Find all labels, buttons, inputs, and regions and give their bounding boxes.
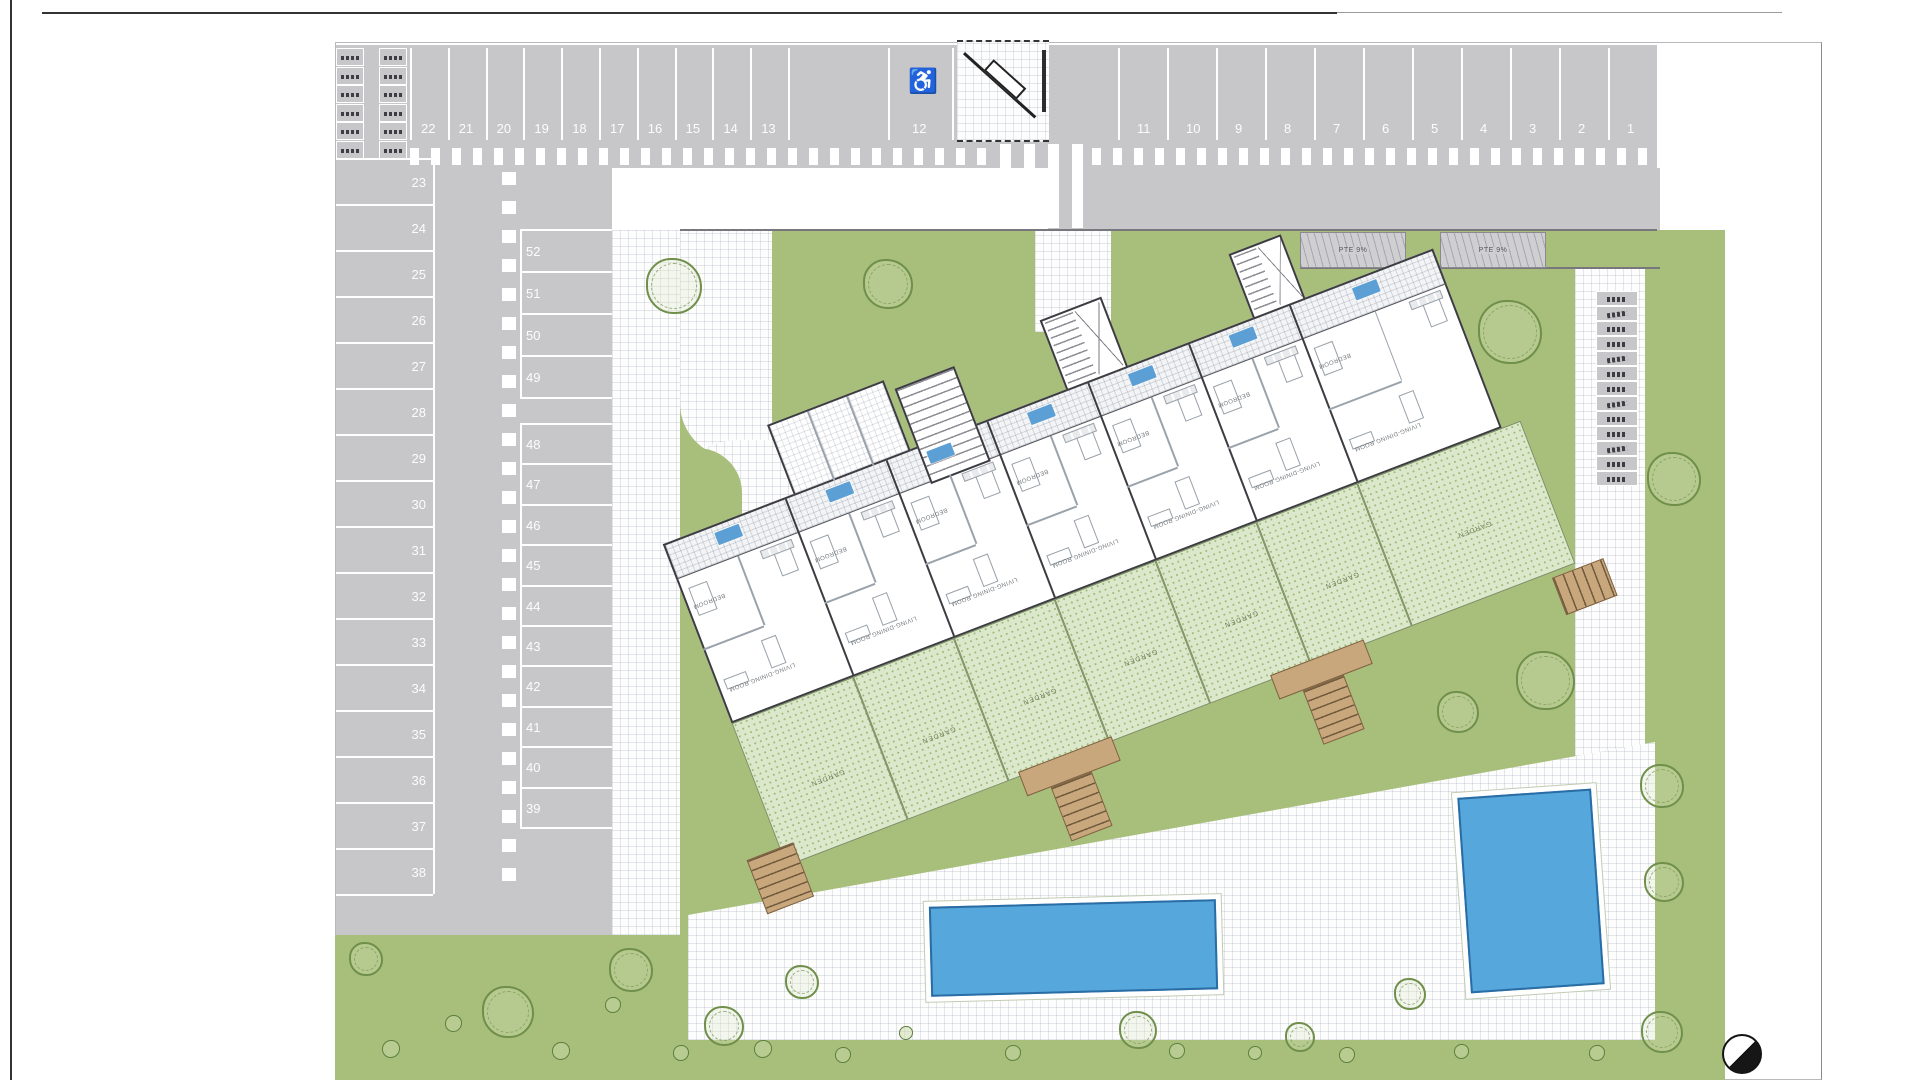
parking-space-number-12: 12 xyxy=(912,122,926,135)
tree-icon xyxy=(349,942,383,976)
parking-space-number-15: 15 xyxy=(686,122,700,135)
bike-stall xyxy=(336,67,364,85)
stall-line xyxy=(520,625,612,627)
stall-line xyxy=(520,504,612,506)
garden-terrace-label: GARDEN xyxy=(1223,609,1259,628)
entrance-crosswalk xyxy=(1000,144,1092,228)
garden-terrace-label: GARDEN xyxy=(1122,648,1158,667)
bike-icon xyxy=(341,93,359,97)
bike-icon xyxy=(341,56,359,60)
stall-line xyxy=(336,894,433,896)
swimming-pool-east xyxy=(1457,789,1604,994)
moto-icon xyxy=(1607,387,1627,392)
stall-line xyxy=(712,48,714,140)
tree-icon xyxy=(609,948,653,992)
parking-space-number-41: 41 xyxy=(526,721,540,734)
parking-space-number-52: 52 xyxy=(526,245,540,258)
parking-space-number-32: 32 xyxy=(388,590,426,603)
parking-space-number-22: 22 xyxy=(421,122,435,135)
bike-stall xyxy=(379,141,407,159)
parking-space-number-34: 34 xyxy=(388,682,426,695)
tree-icon xyxy=(1516,651,1575,710)
parking-space-number-43: 43 xyxy=(526,640,540,653)
bike-stall xyxy=(379,122,407,140)
moto-icon xyxy=(1607,327,1627,332)
stall-line xyxy=(952,48,954,140)
sheet-frame-top-line xyxy=(42,12,1337,14)
stall-line xyxy=(336,664,433,666)
garden-terrace-label: GARDEN xyxy=(1456,519,1492,538)
parking-space-number-44: 44 xyxy=(526,600,540,613)
parking-space-number-38: 38 xyxy=(388,866,426,879)
parking-space-number-13: 13 xyxy=(761,122,775,135)
bike-icon xyxy=(384,130,402,134)
stall-line xyxy=(599,48,601,140)
parking-space-number-25: 25 xyxy=(388,268,426,281)
tree-icon xyxy=(1647,452,1701,506)
moto-icon xyxy=(1607,462,1627,467)
moto-stall xyxy=(1596,426,1638,441)
stall-line xyxy=(1314,48,1316,140)
bike-icon xyxy=(384,149,402,153)
handicap-icon: ♿ xyxy=(908,70,938,94)
bike-icon xyxy=(341,112,359,116)
stall-line xyxy=(336,802,433,804)
parking-space-number-8: 8 xyxy=(1284,122,1291,135)
tree-icon xyxy=(1119,1011,1157,1049)
bush-icon xyxy=(1454,1044,1469,1059)
moto-icon xyxy=(1607,311,1628,319)
tree-icon xyxy=(646,258,702,314)
moto-icon xyxy=(1607,401,1628,409)
stall-line xyxy=(1461,48,1463,140)
moto-stall xyxy=(1596,351,1638,366)
stall-line xyxy=(520,787,612,789)
bike-icon xyxy=(384,93,402,97)
parking-space-number-42: 42 xyxy=(526,680,540,693)
stall-line xyxy=(1559,48,1561,140)
stall-line xyxy=(336,434,433,436)
stall-line xyxy=(336,526,433,528)
center-walk-dashes xyxy=(502,172,516,895)
bike-stall xyxy=(379,85,407,103)
tree-icon xyxy=(1640,764,1684,808)
parking-space-number-29: 29 xyxy=(388,452,426,465)
parking-space-number-17: 17 xyxy=(610,122,624,135)
top-walk-dashes-left xyxy=(410,148,998,165)
stall-line xyxy=(1216,48,1218,140)
stall-line xyxy=(520,827,612,829)
stall-line xyxy=(520,665,612,667)
stall-line xyxy=(448,48,450,140)
utility-partition xyxy=(846,396,874,466)
moto-stall xyxy=(1596,336,1638,351)
moto-icon xyxy=(1607,446,1628,454)
top-walk-dashes-right xyxy=(1092,148,1657,165)
bike-icon xyxy=(341,149,359,153)
parking-space-number-6: 6 xyxy=(1382,122,1389,135)
stall-line xyxy=(336,618,433,620)
parking-space-number-26: 26 xyxy=(388,314,426,327)
moto-stall xyxy=(1596,471,1638,486)
tree-icon xyxy=(863,259,913,309)
site-plan-canvas: PTE 9% PTE 9% ♿ 12 22212019181716151413 … xyxy=(0,0,1920,1080)
stall-line xyxy=(1363,48,1365,140)
moto-stall xyxy=(1596,411,1638,426)
sheet-frame-left-line xyxy=(10,0,12,1080)
stall-line xyxy=(1412,48,1414,140)
stall-line xyxy=(520,423,522,827)
parking-space-number-30: 30 xyxy=(388,498,426,511)
north-site-wall xyxy=(680,229,1657,231)
sheet-frame-top-line-2 xyxy=(1337,12,1782,13)
bike-icon xyxy=(384,75,402,79)
parking-space-number-24: 24 xyxy=(388,222,426,235)
parking-space-number-37: 37 xyxy=(388,820,426,833)
parking-space-number-28: 28 xyxy=(388,406,426,419)
stall-line xyxy=(1608,48,1610,140)
parking-space-number-21: 21 xyxy=(459,122,473,135)
parking-space-number-46: 46 xyxy=(526,519,540,532)
parking-space-number-36: 36 xyxy=(388,774,426,787)
bike-icon xyxy=(384,56,402,60)
parking-space-number-4: 4 xyxy=(1480,122,1487,135)
garage-ramp-right: PTE 9% xyxy=(1440,232,1546,268)
stall-line xyxy=(788,48,790,140)
stall-line xyxy=(336,388,433,390)
stall-line xyxy=(1265,48,1267,140)
stall-line xyxy=(486,48,488,140)
bike-icon xyxy=(341,75,359,79)
stall-line xyxy=(520,544,612,546)
bike-stall xyxy=(379,48,407,66)
stall-line xyxy=(336,756,433,758)
bike-stall xyxy=(336,85,364,103)
stall-line xyxy=(520,313,612,315)
handicap-parking-space: ♿ 12 xyxy=(888,48,954,148)
swimming-pool-main xyxy=(929,899,1218,996)
moto-stall xyxy=(1596,291,1638,306)
stall-line xyxy=(675,48,677,140)
parking-space-number-19: 19 xyxy=(534,122,548,135)
moto-stall xyxy=(1596,396,1638,411)
stall-line xyxy=(336,250,433,252)
parking-space-number-45: 45 xyxy=(526,559,540,572)
parking-space-number-9: 9 xyxy=(1235,122,1242,135)
north-compass-icon xyxy=(1722,1034,1762,1074)
parking-space-number-48: 48 xyxy=(526,438,540,451)
stall-line xyxy=(1167,48,1169,140)
stall-line xyxy=(750,48,752,140)
stall-line xyxy=(520,229,612,231)
parking-space-number-2: 2 xyxy=(1578,122,1585,135)
gate-barrier-body xyxy=(984,59,1027,100)
parking-space-number-40: 40 xyxy=(526,761,540,774)
stall-line xyxy=(336,296,433,298)
parking-space-number-16: 16 xyxy=(648,122,662,135)
stall-line xyxy=(520,463,612,465)
stall-line xyxy=(523,48,525,140)
stall-line xyxy=(336,848,433,850)
moto-stall xyxy=(1596,381,1638,396)
stall-line xyxy=(520,397,612,399)
tree-icon xyxy=(704,1006,744,1046)
parking-space-number-23: 23 xyxy=(388,176,426,189)
stall-line xyxy=(520,746,612,748)
parking-space-number-39: 39 xyxy=(526,802,540,815)
stall-line xyxy=(888,48,890,140)
tree-icon xyxy=(482,986,534,1038)
stall-line xyxy=(520,706,612,708)
stall-line xyxy=(1118,48,1120,140)
parking-space-number-49: 49 xyxy=(526,371,540,384)
parking-space-number-18: 18 xyxy=(572,122,586,135)
moto-icon xyxy=(1607,477,1627,482)
garage-ramp-right-label: PTE 9% xyxy=(1477,247,1510,254)
bike-stall xyxy=(379,67,407,85)
stall-line xyxy=(520,355,612,357)
tree-icon xyxy=(785,965,819,999)
entrance-gate xyxy=(957,40,1049,142)
stall-line xyxy=(1657,48,1659,140)
parking-space-number-3: 3 xyxy=(1529,122,1536,135)
moto-icon xyxy=(1607,297,1627,302)
stall-line xyxy=(1510,48,1512,140)
moto-stall xyxy=(1596,456,1638,471)
bike-stall xyxy=(336,104,364,122)
moto-icon xyxy=(1607,372,1627,377)
moto-icon xyxy=(1607,356,1628,364)
parking-space-number-14: 14 xyxy=(723,122,737,135)
moto-icon xyxy=(1607,432,1627,437)
moto-stall xyxy=(1596,321,1638,336)
garden-terrace-label: GARDEN xyxy=(809,768,845,787)
tree-icon xyxy=(1437,691,1479,733)
bike-stall xyxy=(336,48,364,66)
moto-stall xyxy=(1596,306,1638,321)
moto-icon xyxy=(1607,417,1627,422)
tree-icon xyxy=(1644,862,1684,902)
stall-line xyxy=(336,480,433,482)
bike-icon xyxy=(384,112,402,116)
stall-line xyxy=(336,204,433,206)
bike-stall xyxy=(336,141,364,159)
garden-terrace-label: GARDEN xyxy=(1021,686,1057,705)
parking-space-number-47: 47 xyxy=(526,478,540,491)
tree-icon xyxy=(1641,1011,1683,1053)
tree-icon xyxy=(1394,978,1426,1010)
gate-wall xyxy=(1042,50,1046,112)
parking-space-number-20: 20 xyxy=(497,122,511,135)
stall-line xyxy=(520,229,522,397)
stall-line xyxy=(520,585,612,587)
parking-space-number-27: 27 xyxy=(388,360,426,373)
parking-space-number-7: 7 xyxy=(1333,122,1340,135)
moto-icon xyxy=(1607,342,1627,347)
stall-line xyxy=(520,271,612,273)
parking-space-number-50: 50 xyxy=(526,329,540,342)
stall-line xyxy=(336,710,433,712)
bike-stall xyxy=(379,104,407,122)
stall-line xyxy=(520,423,612,425)
stall-line xyxy=(637,48,639,140)
parking-space-number-51: 51 xyxy=(526,287,540,300)
parking-space-number-35: 35 xyxy=(388,728,426,741)
garden-terrace-label: GARDEN xyxy=(920,725,956,744)
bush-icon xyxy=(445,1015,462,1032)
parking-space-number-10: 10 xyxy=(1186,122,1200,135)
stall-line xyxy=(336,342,433,344)
bike-icon xyxy=(341,130,359,134)
parking-space-number-1: 1 xyxy=(1627,122,1634,135)
garden-terrace-label: GARDEN xyxy=(1324,570,1360,589)
parking-space-number-31: 31 xyxy=(388,544,426,557)
stall-line xyxy=(336,572,433,574)
parking-space-number-5: 5 xyxy=(1431,122,1438,135)
stall-line xyxy=(410,48,412,140)
utility-partition xyxy=(807,411,835,481)
stall-line xyxy=(561,48,563,140)
stall-line xyxy=(433,158,435,894)
parking-space-number-11: 11 xyxy=(1137,122,1151,135)
moto-stall xyxy=(1596,441,1638,456)
parking-space-number-33: 33 xyxy=(388,636,426,649)
bike-stall xyxy=(336,122,364,140)
tree-icon xyxy=(1285,1022,1315,1052)
moto-stall xyxy=(1596,366,1638,381)
